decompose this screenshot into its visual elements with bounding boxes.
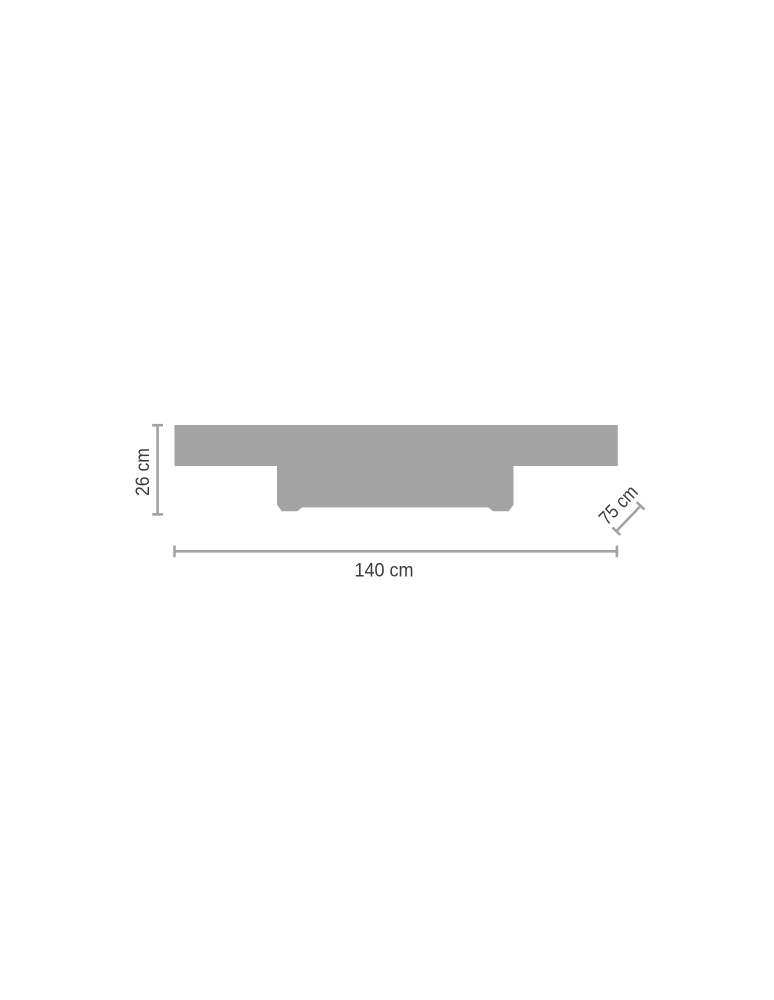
svg-text:140 cm: 140 cm <box>355 560 414 582</box>
svg-text:26 cm: 26 cm <box>132 448 154 496</box>
